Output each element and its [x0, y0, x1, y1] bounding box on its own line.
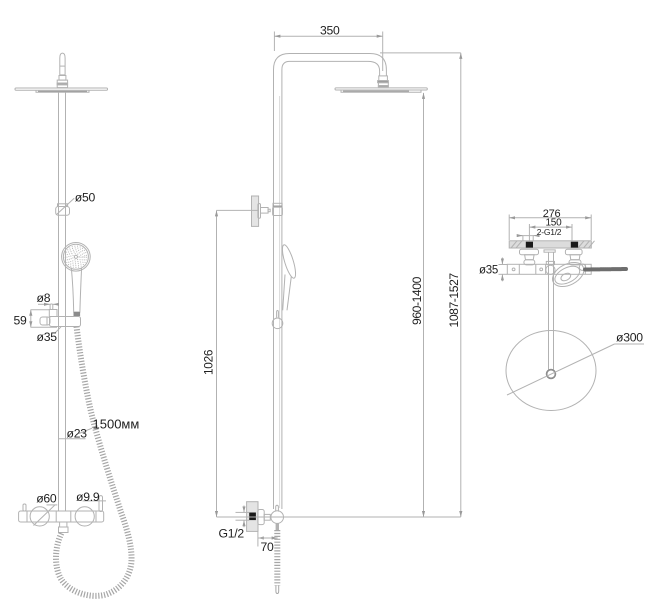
svg-text:70: 70 — [261, 540, 275, 554]
svg-text:ø8: ø8 — [37, 291, 51, 305]
svg-text:2-G1/2: 2-G1/2 — [537, 227, 562, 237]
svg-text:ø35: ø35 — [479, 264, 498, 276]
svg-text:350: 350 — [320, 24, 340, 38]
svg-text:ø35: ø35 — [37, 330, 58, 344]
svg-text:1026: 1026 — [202, 349, 216, 375]
svg-text:G1/2: G1/2 — [219, 527, 245, 541]
svg-text:1500мм: 1500мм — [93, 416, 140, 431]
svg-text:ø50: ø50 — [75, 190, 96, 204]
svg-text:59: 59 — [14, 314, 28, 328]
svg-text:ø23: ø23 — [67, 427, 88, 441]
svg-text:960-1400: 960-1400 — [410, 276, 424, 325]
svg-text:1087-1527: 1087-1527 — [447, 273, 461, 328]
svg-text:ø60: ø60 — [36, 491, 57, 505]
svg-text:ø300: ø300 — [616, 331, 643, 345]
svg-text:ø9.9: ø9.9 — [76, 490, 100, 504]
